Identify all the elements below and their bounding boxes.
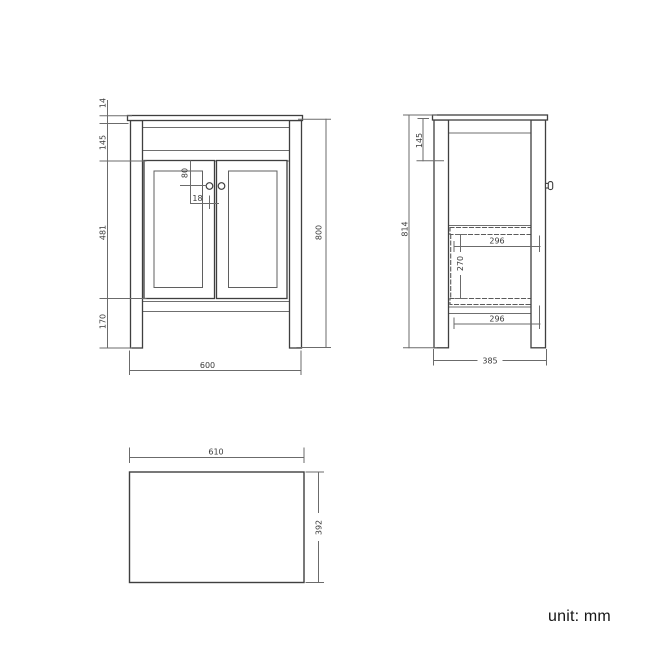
dim-shelf-spacing: 270: [456, 256, 465, 271]
dim-front-total-height: 800: [315, 225, 324, 240]
side-view: 814 145 270 296 296 385: [401, 115, 553, 366]
side-hidden-lower-shelf: [450, 299, 539, 305]
dim-side-depth: 385: [482, 357, 497, 366]
right-knob-icon: [218, 183, 225, 190]
dim-front-top-section: 145: [99, 135, 108, 150]
dim-upper-shelf-width: 296: [489, 237, 504, 246]
vanity-dimension-drawing: 14 145 481 170 800 80 18 600: [0, 0, 650, 650]
top-view-countertop: [130, 472, 305, 583]
side-front-leg: [434, 120, 449, 348]
dim-top-depth: 392: [314, 520, 323, 535]
dim-knob-vertical-offset: 80: [181, 168, 190, 178]
side-countertop: [433, 115, 548, 120]
front-right-leg: [290, 121, 302, 349]
front-left-door: [144, 161, 215, 299]
dim-top-width: 610: [208, 448, 223, 457]
side-hidden-lines: [437, 121, 540, 305]
front-left-leg: [131, 121, 143, 349]
left-knob-icon: [206, 183, 213, 190]
dim-front-width: 600: [200, 361, 215, 370]
front-door-knobs: [206, 183, 225, 190]
side-knob-icon: [546, 182, 553, 190]
front-width-dimension-lines: [130, 351, 302, 375]
side-dimension-lines: [404, 115, 547, 365]
front-right-door: [217, 161, 288, 299]
dim-lower-shelf-width: 296: [489, 315, 504, 324]
side-hidden-upper-shelf: [450, 228, 539, 235]
top-view: 610 392: [130, 448, 324, 583]
dim-front-top-thickness: 14: [99, 98, 108, 108]
front-countertop: [128, 116, 303, 121]
front-view: 14 145 481 170 800 80 18 600: [99, 98, 331, 375]
dim-knob-horizontal-offset: 18: [192, 194, 202, 203]
side-back-leg: [531, 120, 546, 348]
dim-front-door-height: 481: [99, 225, 108, 240]
dim-front-leg-height: 170: [99, 314, 108, 329]
unit-label: unit: mm: [548, 608, 638, 626]
dim-side-total-height: 814: [401, 221, 410, 236]
technical-drawing-page: 14 145 481 170 800 80 18 600: [0, 0, 650, 650]
dim-side-top-section: 145: [415, 133, 424, 148]
